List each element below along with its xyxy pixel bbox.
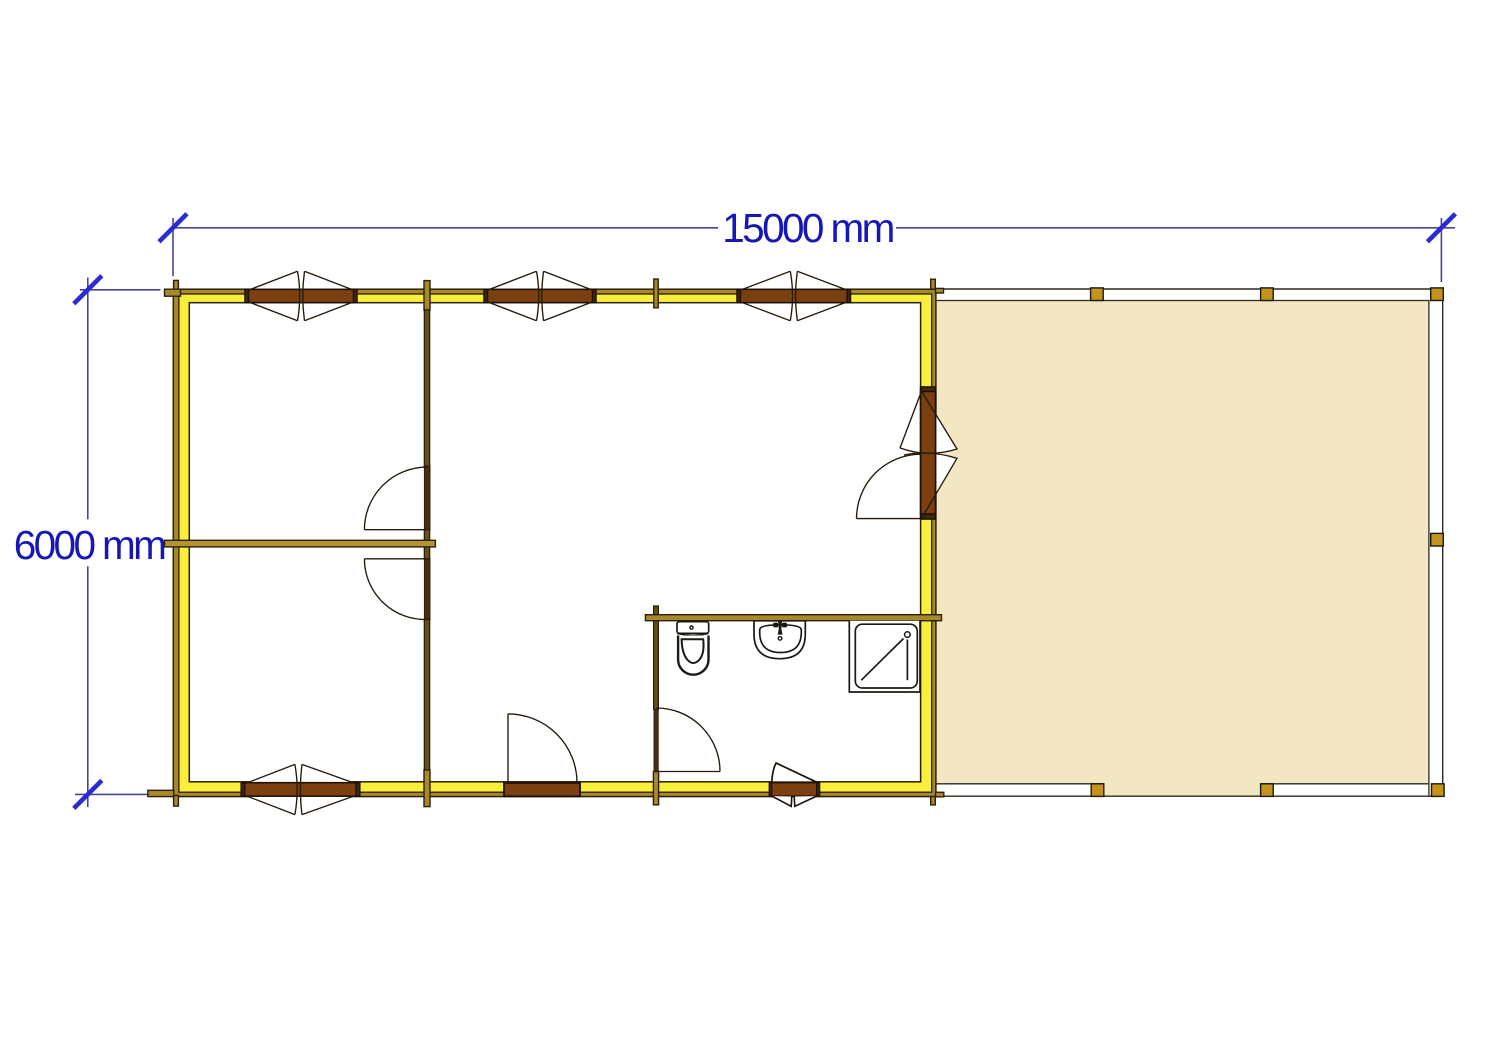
svg-text:6000 mm: 6000 mm xyxy=(14,522,165,568)
svg-text:15000 mm: 15000 mm xyxy=(722,205,893,251)
